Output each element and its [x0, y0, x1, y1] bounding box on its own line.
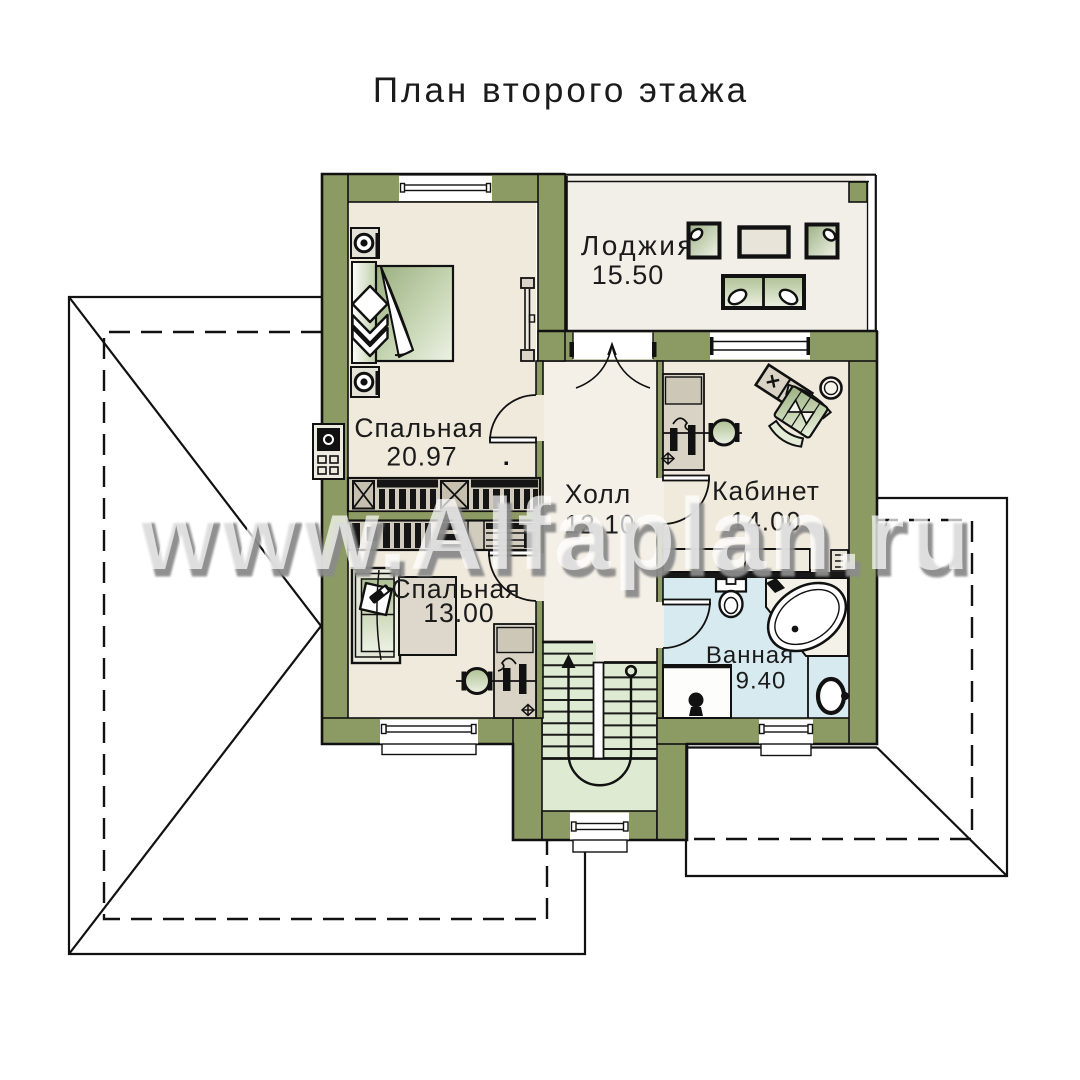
svg-text:www.Alfaplan.ru: www.Alfaplan.ru: [136, 479, 972, 591]
svg-text:20.97: 20.97: [386, 442, 457, 472]
svg-text:9.40: 9.40: [736, 668, 787, 695]
svg-text:13.00: 13.00: [423, 598, 494, 628]
svg-text:План второго этажа: План второго этажа: [373, 71, 749, 110]
svg-text:Лоджия: Лоджия: [581, 230, 695, 261]
svg-text:15.50: 15.50: [592, 260, 665, 290]
svg-text:Ванная: Ванная: [706, 642, 794, 669]
svg-text:Спальная: Спальная: [354, 413, 483, 443]
